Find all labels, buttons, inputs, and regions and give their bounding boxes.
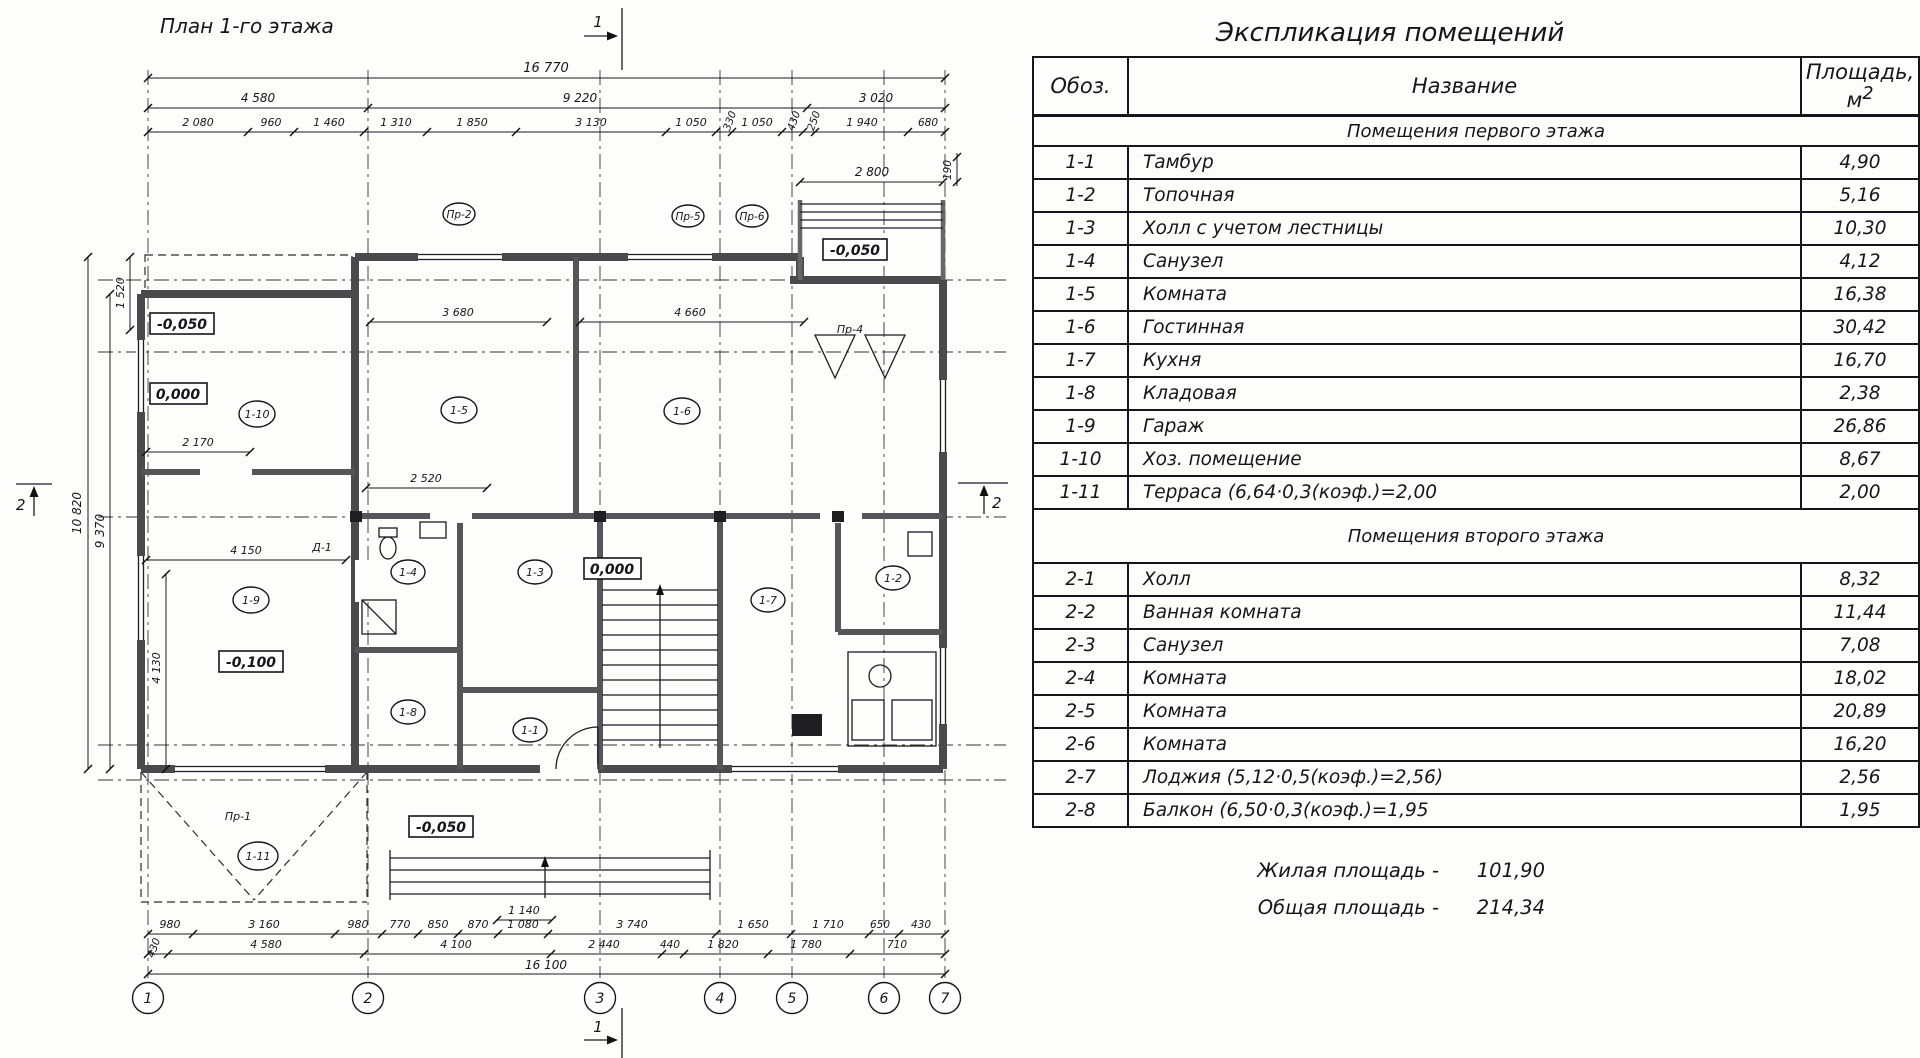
explication-table: Обоз. Название Площадь,м2 Помещения перв…	[1032, 56, 1920, 828]
drawing-sheet: План 1-го этажа 1 1 2 2	[0, 0, 1920, 1058]
axis-bubble: 3	[585, 983, 616, 1014]
table-title: Экспликация помещений	[1032, 18, 1918, 56]
section-label: 2	[992, 494, 1002, 512]
svg-text:-0,050: -0,050	[157, 317, 207, 333]
section-label: 2	[16, 496, 26, 514]
dim-label: 3 130	[575, 116, 607, 129]
total-value: 101,90	[1465, 859, 1545, 882]
dim-label: 2 800	[855, 165, 890, 179]
porch-bottom	[390, 850, 710, 900]
table-row: 1-5Комната16,38	[1033, 278, 1919, 311]
opening-tag: Пр-5	[672, 205, 704, 227]
svg-text:7: 7	[941, 991, 950, 1007]
axis-bubble: 5	[777, 983, 808, 1014]
table-row: 2-3Санузел7,08	[1033, 629, 1919, 662]
section-mark-right: 2	[958, 483, 1008, 514]
dim-bottom: 980 3 160 980 770 850 870 1 080 3 740 1 …	[144, 918, 949, 978]
dim-label: 440	[660, 939, 680, 951]
dim-label: 3 020	[859, 91, 894, 105]
dim-label: 1 780	[790, 938, 822, 951]
svg-text:1-3: 1-3	[526, 566, 544, 579]
table-row: 1-3Холл с учетом лестницы10,30	[1033, 212, 1919, 245]
svg-text:Пр-2: Пр-2	[446, 209, 471, 221]
svg-text:-0,100: -0,100	[226, 655, 276, 671]
porch-top-right	[800, 200, 943, 378]
room-tag: 1-8	[391, 700, 425, 724]
section-label: 1	[593, 1018, 603, 1036]
col-header-name: Название	[1128, 57, 1801, 116]
table-row: 2-2Ванная комната11,44	[1033, 596, 1919, 629]
room-tag: 1-1	[513, 718, 547, 742]
section-label: 1	[593, 13, 603, 31]
table-row: 1-11Терраса (6,64·0,3(коэф.)=2,002,00	[1033, 476, 1919, 509]
garage-gate	[175, 764, 325, 774]
room-tag: 1-7	[751, 588, 785, 612]
overall-area-total: Общая площадь - 214,34	[1032, 889, 1918, 926]
svg-text:-0,050: -0,050	[830, 243, 880, 259]
door-gap	[355, 560, 369, 602]
section-mark-left: 2	[16, 484, 52, 516]
table-row: 1-8Кладовая2,38	[1033, 377, 1919, 410]
terrace-outline	[141, 772, 367, 902]
dim-label: 1 310	[380, 116, 412, 129]
axis-bubble: 4	[705, 983, 736, 1014]
table-row: 2-8Балкон (6,50·0,3(коэф.)=1,951,95	[1033, 794, 1919, 827]
opening-tag: Пр-4	[837, 323, 863, 336]
dim-label: 9 220	[563, 91, 598, 105]
staircase	[602, 584, 718, 748]
dim-label: 4 100	[440, 938, 472, 951]
room-tag: 1-2	[876, 566, 910, 590]
axis-bubble: 1	[133, 983, 164, 1014]
dim-label: 16 770	[523, 61, 569, 76]
dim-label: 1 050	[675, 116, 707, 129]
svg-text:2: 2	[364, 991, 373, 1007]
svg-text:0,000: 0,000	[156, 387, 201, 403]
opening-tag: Пр-2	[443, 203, 475, 225]
dim-label: 680	[918, 117, 938, 129]
elevation-box: -0,050	[409, 816, 473, 837]
table-row: 2-4Комната18,02	[1033, 662, 1919, 695]
svg-text:1-5: 1-5	[450, 404, 468, 417]
room-tag: 1-5	[441, 397, 477, 423]
axis-bubble: 7	[930, 983, 961, 1014]
dim-label: 1 050	[741, 116, 773, 129]
dim-label: 9 370	[93, 513, 107, 548]
living-area-total: Жилая площадь - 101,90	[1032, 852, 1918, 889]
table-row: 1-1Тамбур4,90	[1033, 146, 1919, 179]
dim-label: 330	[721, 109, 739, 132]
table-row: 1-4Санузел4,12	[1033, 245, 1919, 278]
svg-text:1-4: 1-4	[399, 566, 417, 579]
boiler-fixture	[908, 532, 932, 556]
room-tag: 1-10	[239, 401, 275, 427]
dim-label: 1 080	[507, 918, 539, 931]
dim-label: 770	[390, 918, 411, 931]
svg-text:5: 5	[788, 991, 797, 1007]
table-row: 2-7Лоджия (5,12·0,5(коэф.)=2,56)2,56	[1033, 761, 1919, 794]
svg-text:1-7: 1-7	[759, 594, 777, 607]
dim-label: 1 460	[313, 116, 345, 129]
dim-label: 1 820	[707, 938, 739, 951]
col-header-code: Обоз.	[1033, 57, 1128, 116]
dim-label: 3 740	[616, 918, 648, 931]
dim-label: 1 850	[456, 116, 488, 129]
area-totals: Жилая площадь - 101,90 Общая площадь - 2…	[1032, 852, 1918, 926]
stove-block	[792, 714, 822, 736]
svg-text:1-11: 1-11	[246, 850, 271, 863]
dim-label: 3 680	[442, 306, 474, 319]
dim-label: 2 440	[588, 938, 620, 951]
dim-label: 430	[911, 919, 931, 931]
room-tag: 1-11	[238, 842, 278, 870]
dim-inner: 3 680 4 660 2 170 2 520 4 150 1 140	[142, 306, 808, 924]
svg-text:-0,050: -0,050	[416, 820, 466, 836]
dim-label: 960	[261, 116, 282, 129]
total-label: Общая площадь -	[1258, 896, 1439, 919]
dim-label: 870	[468, 918, 489, 931]
svg-text:1-9: 1-9	[242, 594, 260, 607]
svg-text:4: 4	[716, 991, 725, 1007]
floor-plan: План 1-го этажа 1 1 2 2	[0, 0, 1020, 1058]
dim-label: 1 940	[846, 116, 878, 129]
dim-label: 250	[805, 109, 823, 132]
svg-text:1-1: 1-1	[521, 724, 539, 737]
svg-text:Пр-6: Пр-6	[739, 211, 764, 223]
axis-bubble: 6	[869, 983, 900, 1014]
table-row: 1-9Гараж26,86	[1033, 410, 1919, 443]
table-row: 1-10Хоз. помещение8,67	[1033, 443, 1919, 476]
window	[938, 648, 948, 724]
dim-label: 650	[870, 919, 890, 931]
svg-text:1-6: 1-6	[673, 405, 691, 418]
dim-label: 980	[160, 918, 181, 931]
room-tags: 1-10 1-5 1-6 1-9 1-4 1-3 1-7 1-2 1-1 1-8…	[233, 397, 910, 870]
opening-tag: Пр-1	[225, 810, 251, 823]
dim-label: 1 520	[114, 277, 127, 309]
table-row: 1-7Кухня16,70	[1033, 344, 1919, 377]
col-header-area: Площадь,м2	[1801, 57, 1919, 116]
kitchen-fixtures	[848, 652, 936, 746]
room-tag: 1-9	[233, 587, 269, 613]
dim-label: 2 080	[182, 116, 214, 129]
section-header-floor1: Помещения первого этажа	[1033, 116, 1919, 147]
elevation-box: -0,100	[219, 651, 283, 672]
dim-label: 4 150	[230, 544, 262, 557]
dim-label: 1 650	[737, 918, 769, 931]
dim-label: 4 130	[150, 652, 163, 684]
total-label: Жилая площадь -	[1257, 859, 1439, 882]
dim-label: 10 820	[70, 492, 84, 534]
window	[418, 252, 502, 262]
explication-panel: Экспликация помещений Обоз. Название Пло…	[1032, 18, 1918, 926]
dim-label: 16 100	[525, 958, 567, 972]
dim-label: 190	[942, 160, 954, 180]
dim-label: 2 520	[410, 472, 442, 485]
svg-text:3: 3	[596, 991, 605, 1007]
dim-label: 4 660	[674, 306, 706, 319]
room-tag: 1-6	[664, 398, 700, 424]
window	[628, 252, 712, 262]
slope-arrows	[815, 335, 905, 378]
elevation-box: -0,050	[150, 313, 214, 334]
dim-label: 430	[785, 109, 803, 132]
svg-text:6: 6	[880, 991, 889, 1007]
svg-text:1-8: 1-8	[399, 706, 417, 719]
svg-text:1-10: 1-10	[245, 408, 270, 421]
dim-label: 980	[348, 918, 369, 931]
svg-text:1-2: 1-2	[884, 572, 902, 585]
elevation-box: -0,050	[823, 239, 887, 260]
svg-text:Пр-5: Пр-5	[675, 211, 700, 223]
axis-grid	[98, 70, 1006, 978]
window	[938, 380, 948, 452]
axis-bubble: 2	[353, 983, 384, 1014]
table-row: 1-6Гостинная30,42	[1033, 311, 1919, 344]
table-header-row: Обоз. Название Площадь,м2	[1033, 57, 1919, 116]
dim-label: 4 580	[241, 91, 276, 105]
section-mark-bottom: 1	[584, 1008, 622, 1058]
table-row: 2-6Комната16,20	[1033, 728, 1919, 761]
dim-label: 1 140	[508, 904, 540, 917]
section-header-floor2: Помещения второго этажа	[1033, 509, 1919, 563]
window	[136, 556, 146, 640]
opening-tag: Пр-6	[736, 205, 768, 227]
elevation-box: 0,000	[150, 383, 207, 404]
window	[732, 764, 838, 774]
elevation-marks: -0,050 0,000 -0,100 0,000 -0,050 -0,050	[150, 239, 887, 837]
window	[136, 340, 146, 412]
dim-label: 3 160	[248, 918, 280, 931]
table-row: 2-5Комната20,89	[1033, 695, 1919, 728]
interior-walls	[141, 257, 943, 769]
plan-title: План 1-го этажа	[160, 14, 334, 38]
elevation-box: 0,000	[584, 558, 641, 579]
roof-overhang-dashed	[145, 255, 352, 292]
dim-label: 4 580	[250, 938, 282, 951]
room-tag: 1-3	[518, 560, 552, 584]
total-value: 214,34	[1465, 896, 1545, 919]
opening-tag: Д-1	[311, 541, 332, 554]
section-mark-top: 1	[584, 8, 622, 70]
table-row: 1-2Топочная5,16	[1033, 179, 1919, 212]
dim-label: 1 710	[812, 918, 844, 931]
svg-text:1: 1	[144, 991, 153, 1007]
dim-label: 2 170	[182, 436, 214, 449]
room-tag: 1-4	[391, 560, 425, 584]
table-row: 2-1Холл8,32	[1033, 563, 1919, 596]
axis-bubbles-bottom: 1 2 3 4 5 6 7	[133, 983, 961, 1014]
svg-text:0,000: 0,000	[590, 562, 635, 578]
dim-label: 850	[428, 918, 449, 931]
dim-top: 16 770 4 580 9 220 3 020 2 080 960 1 460…	[144, 61, 961, 186]
entry-door	[540, 727, 598, 774]
dim-label: 710	[887, 939, 907, 951]
